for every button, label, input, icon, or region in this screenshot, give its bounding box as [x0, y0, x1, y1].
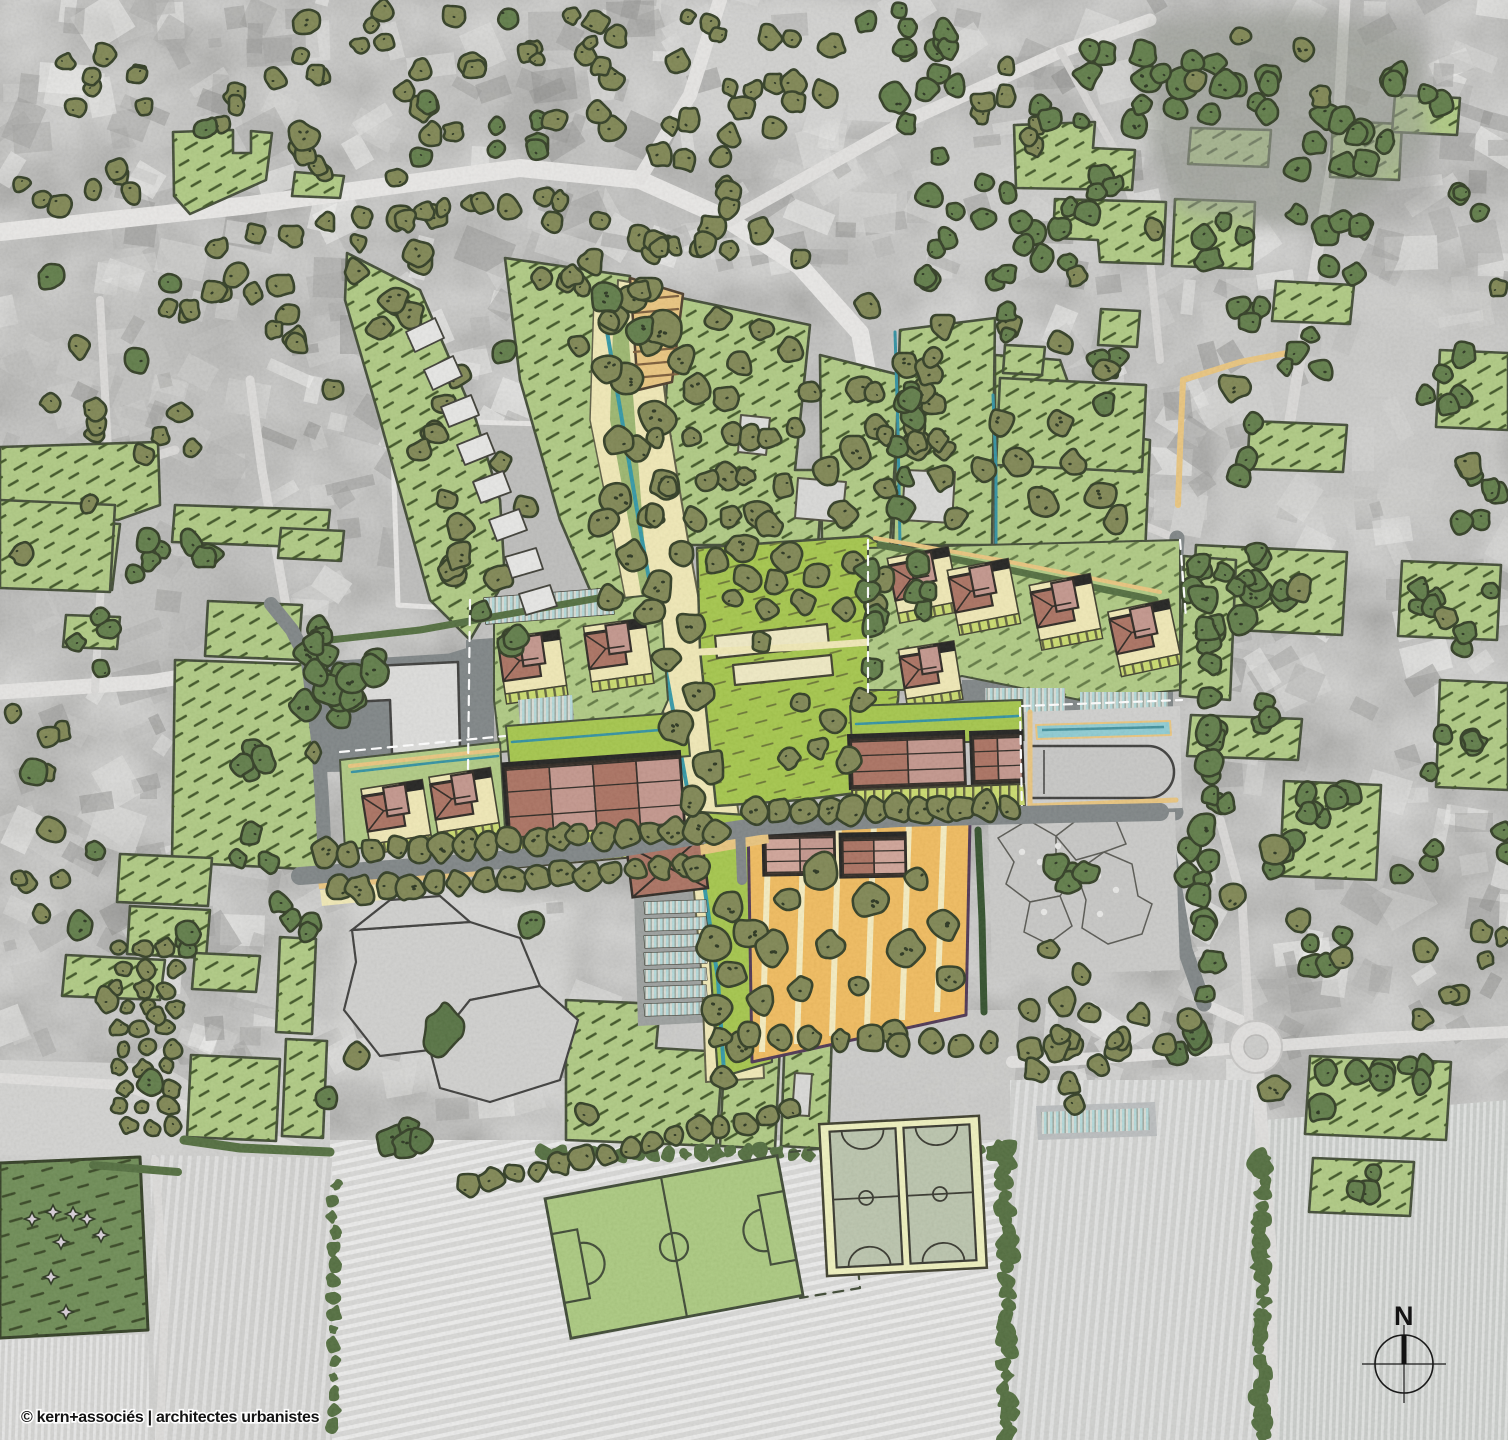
svg-text:N: N: [1394, 1301, 1414, 1331]
svg-text:© kern+associés | architectes: © kern+associés | architectes urbanistes: [21, 1409, 320, 1426]
